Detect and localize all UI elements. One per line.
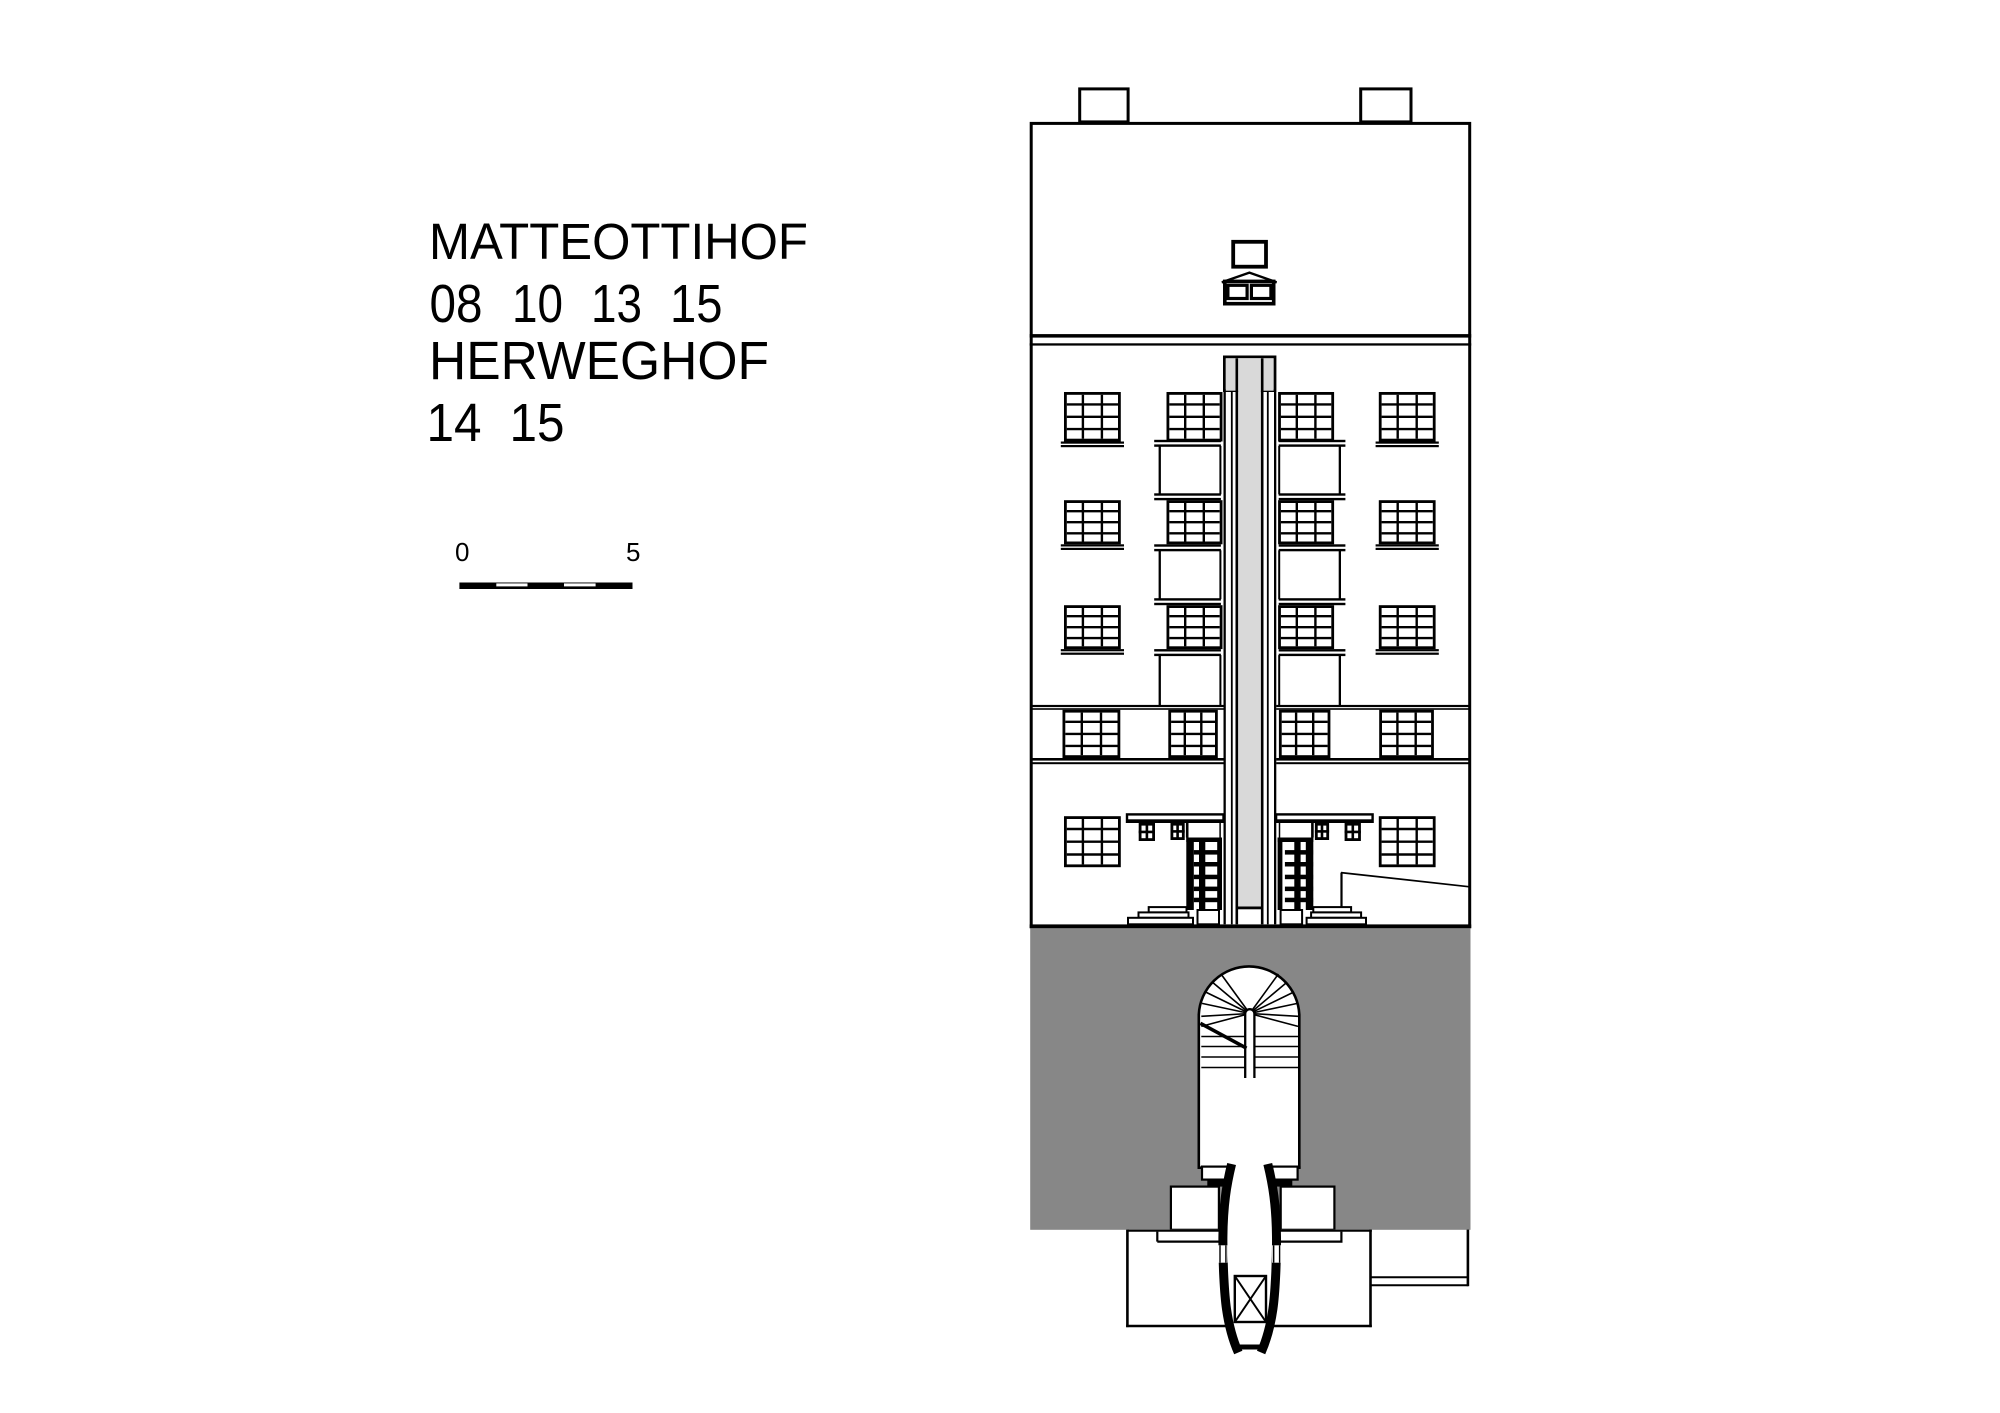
svg-text:5: 5	[626, 537, 640, 567]
svg-text:HERWEGHOF: HERWEGHOF	[429, 331, 769, 391]
svg-text:10: 10	[512, 274, 563, 334]
svg-text:14: 14	[427, 393, 482, 453]
svg-text:15: 15	[670, 274, 723, 334]
svg-text:13: 13	[591, 274, 642, 334]
svg-text:15: 15	[510, 393, 565, 453]
svg-text:MATTEOTTIHOF: MATTEOTTIHOF	[429, 213, 808, 270]
svg-text:08: 08	[430, 274, 483, 334]
svg-text:0: 0	[455, 537, 469, 567]
